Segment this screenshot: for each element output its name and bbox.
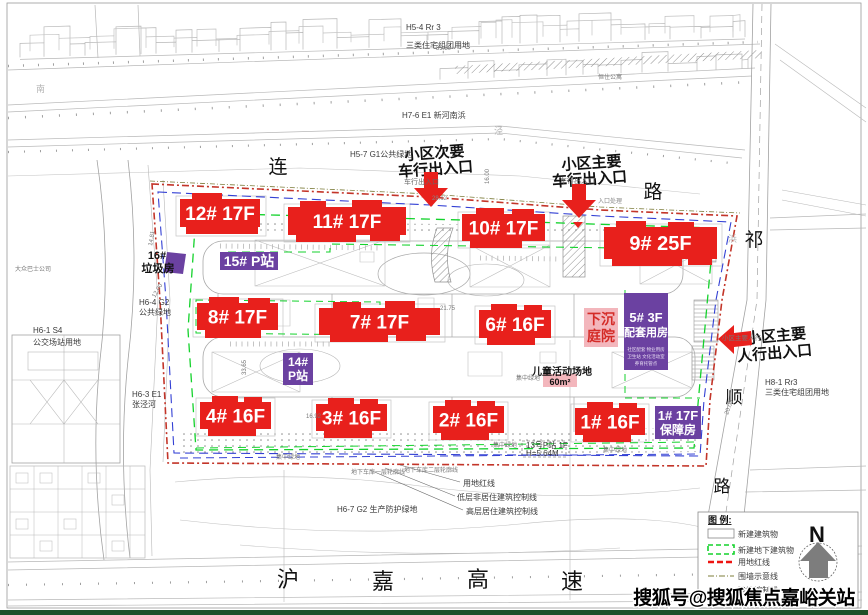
svg-text:33.65: 33.65: [242, 359, 248, 375]
svg-text:高: 高: [467, 567, 489, 592]
svg-text:16.92: 16.92: [306, 414, 322, 420]
svg-text:P站: P站: [288, 368, 308, 383]
svg-text:用地红线: 用地红线: [738, 557, 770, 567]
svg-text:60m²: 60m²: [549, 377, 570, 387]
svg-text:9# 25F: 9# 25F: [629, 233, 691, 255]
svg-text:地下车库一层轮廓线: 地下车库一层轮廓线: [351, 468, 405, 476]
svg-text:图 例:: 图 例:: [708, 514, 732, 525]
svg-text:H7-6 E1 新河南浜: H7-6 E1 新河南浜: [402, 110, 466, 120]
svg-text:小区主要人行: 小区主要人行: [722, 333, 762, 342]
svg-text:祁: 祁: [744, 229, 763, 251]
svg-text:南: 南: [36, 83, 45, 94]
svg-text:路: 路: [643, 181, 662, 203]
svg-text:养育托管点: 养育托管点: [635, 360, 658, 367]
svg-text:入口处理: 入口处理: [598, 197, 622, 205]
svg-text:35.80: 35.80: [436, 46, 452, 52]
svg-text:下沉: 下沉: [587, 311, 615, 327]
svg-text:H=5.64M: H=5.64M: [526, 449, 559, 458]
svg-text:用地红线: 用地红线: [463, 478, 495, 488]
svg-text:垃圾房: 垃圾房: [142, 261, 175, 275]
svg-text:公交场站用地: 公交场站用地: [33, 337, 81, 347]
svg-text:H5-4 Rr 3: H5-4 Rr 3: [406, 23, 441, 32]
svg-text:H6-4 G2: H6-4 G2: [139, 298, 170, 307]
svg-text:8# 17F: 8# 17F: [208, 307, 267, 328]
svg-text:H6-3 E1: H6-3 E1: [132, 390, 162, 399]
svg-text:高层居住建筑控制线: 高层居住建筑控制线: [466, 506, 538, 516]
svg-text:14#: 14#: [288, 355, 308, 369]
svg-text:车行出入口: 车行出入口: [560, 176, 595, 185]
svg-text:H8-1 Rr3: H8-1 Rr3: [765, 378, 798, 387]
svg-text:H6-7 G2 生产防护绿地: H6-7 G2 生产防护绿地: [337, 504, 417, 514]
svg-text:连: 连: [268, 156, 287, 178]
svg-text:嘉: 嘉: [372, 569, 394, 594]
svg-text:集中绿地: 集中绿地: [276, 453, 300, 461]
svg-text:公共绿地: 公共绿地: [139, 307, 171, 317]
svg-text:15# P站: 15# P站: [224, 253, 275, 269]
svg-text:围墙示意线: 围墙示意线: [738, 571, 778, 581]
svg-text:11# 17F: 11# 17F: [313, 212, 382, 233]
svg-text:1# 17F: 1# 17F: [658, 408, 699, 423]
svg-text:车行出入口: 车行出入口: [404, 177, 439, 186]
svg-text:28.12: 28.12: [432, 196, 448, 202]
svg-text:3# 16F: 3# 16F: [322, 408, 381, 429]
svg-text:新建建筑物: 新建建筑物: [738, 529, 778, 539]
svg-text:H6-1 S4: H6-1 S4: [33, 326, 63, 335]
svg-text:泾: 泾: [494, 125, 503, 136]
svg-text:搜狐号@搜狐焦点嘉峪关站: 搜狐号@搜狐焦点嘉峪关站: [633, 586, 855, 609]
svg-text:浜: 浜: [728, 234, 737, 244]
svg-text:N: N: [809, 522, 825, 547]
svg-text:庭院: 庭院: [587, 328, 615, 344]
svg-text:恒住公寓: 恒住公寓: [598, 73, 622, 81]
svg-text:地下车库二层轮廓线: 地下车库二层轮廓线: [404, 466, 458, 474]
svg-text:配套用房: 配套用房: [624, 325, 668, 339]
svg-text:三类住宅组团用地: 三类住宅组团用地: [765, 387, 829, 397]
svg-text:低层非居住建筑控制线: 低层非居住建筑控制线: [457, 492, 537, 502]
svg-text:21.75: 21.75: [440, 306, 456, 312]
svg-text:5# 3F: 5# 3F: [629, 310, 662, 325]
svg-text:卫生站 文化活动室: 卫生站 文化活动室: [627, 353, 665, 360]
svg-text:集中绿地: 集中绿地: [493, 441, 517, 449]
svg-text:社区配套 物业用房: 社区配套 物业用房: [627, 346, 665, 353]
svg-text:路: 路: [714, 477, 731, 496]
svg-text:2# 16F: 2# 16F: [439, 410, 498, 431]
svg-text:12# 17F: 12# 17F: [185, 204, 255, 225]
svg-text:4# 16F: 4# 16F: [206, 406, 265, 427]
svg-text:H5-7 G1公共绿地: H5-7 G1公共绿地: [350, 149, 412, 159]
svg-text:沪: 沪: [277, 567, 299, 592]
svg-text:集中绿地: 集中绿地: [603, 446, 627, 454]
svg-text:集中绿地: 集中绿地: [516, 374, 540, 382]
svg-text:16#: 16#: [148, 250, 166, 262]
svg-text:10# 17F: 10# 17F: [469, 218, 539, 239]
svg-text:1# 16F: 1# 16F: [580, 412, 639, 433]
svg-text:新建地下建筑物: 新建地下建筑物: [738, 545, 794, 555]
svg-text:保障房: 保障房: [659, 422, 696, 437]
svg-text:16.00: 16.00: [485, 168, 491, 184]
svg-text:大众巴士公司: 大众巴士公司: [15, 265, 51, 273]
svg-text:7# 17F: 7# 17F: [350, 312, 409, 333]
svg-text:6# 16F: 6# 16F: [485, 315, 544, 336]
svg-text:速: 速: [561, 569, 583, 594]
svg-text:张泾河: 张泾河: [132, 399, 156, 409]
